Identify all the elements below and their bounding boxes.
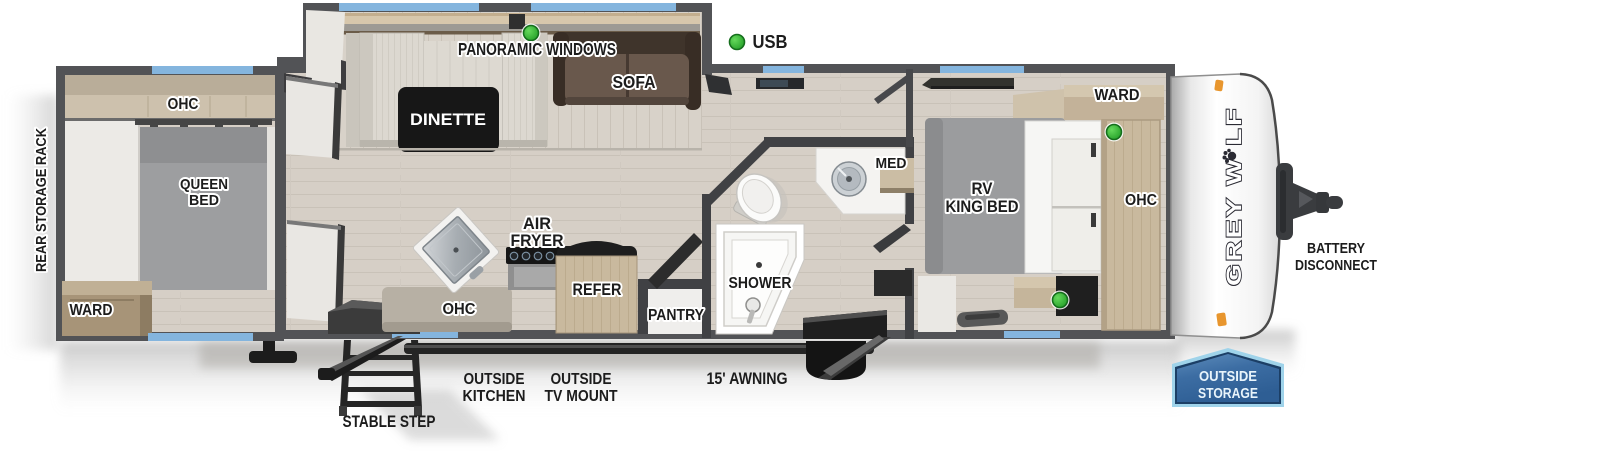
svg-text:GREY W LF: GREY W LF xyxy=(1223,106,1246,286)
svg-text:BED: BED xyxy=(189,192,219,209)
svg-text:OHC: OHC xyxy=(1125,192,1157,209)
svg-text:OUTSIDE: OUTSIDE xyxy=(1199,369,1257,385)
svg-text:OHC: OHC xyxy=(168,96,199,113)
svg-text:15' AWNING: 15' AWNING xyxy=(707,370,788,388)
svg-text:REAR STORAGE RACK: REAR STORAGE RACK xyxy=(33,128,50,272)
svg-text:KING BED: KING BED xyxy=(946,198,1019,216)
svg-text:OUTSIDE: OUTSIDE xyxy=(464,371,525,388)
svg-text:BATTERY: BATTERY xyxy=(1307,241,1365,257)
svg-text:PANTRY: PANTRY xyxy=(648,307,704,324)
svg-text:OUTSIDE: OUTSIDE xyxy=(551,371,612,388)
svg-text:KITCHEN: KITCHEN xyxy=(463,388,526,405)
svg-text:DINETTE: DINETTE xyxy=(410,110,486,129)
svg-text:STABLE STEP: STABLE STEP xyxy=(343,413,436,431)
svg-text:SHOWER: SHOWER xyxy=(729,275,792,292)
svg-text:PANORAMIC WINDOWS: PANORAMIC WINDOWS xyxy=(458,39,616,59)
svg-text:OHC: OHC xyxy=(443,301,476,318)
svg-text:TV MOUNT: TV MOUNT xyxy=(545,388,618,405)
svg-text:STORAGE: STORAGE xyxy=(1198,386,1258,402)
svg-text:RV: RV xyxy=(972,180,993,198)
svg-text:REFER: REFER xyxy=(573,281,622,299)
svg-text:WARD: WARD xyxy=(70,302,113,319)
svg-text:DISCONNECT: DISCONNECT xyxy=(1295,258,1377,274)
svg-text:QUEEN: QUEEN xyxy=(180,176,228,193)
svg-text:USB: USB xyxy=(753,31,788,52)
svg-text:WARD: WARD xyxy=(1095,87,1140,104)
svg-text:SOFA: SOFA xyxy=(613,72,656,92)
svg-text:AIR: AIR xyxy=(523,215,551,233)
svg-text:MED: MED xyxy=(876,155,907,172)
svg-text:FRYER: FRYER xyxy=(511,232,564,250)
